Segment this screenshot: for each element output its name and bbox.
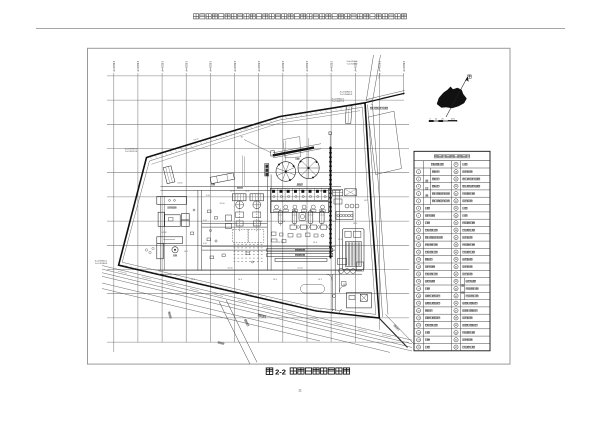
svg-text:N2: N2	[241, 137, 243, 139]
svg-text:G1.50: G1.50	[297, 268, 302, 270]
svg-text:A=4 839.5: A=4 839.5	[137, 60, 140, 71]
svg-text:A=4 839.5: A=4 839.5	[330, 60, 333, 71]
svg-text:A=4 839.5: A=4 839.5	[258, 60, 261, 71]
svg-text:2-2: 2-2	[275, 368, 286, 377]
svg-text:Y=2 05188.4: Y=2 05188.4	[95, 263, 108, 265]
svg-text:0: 0	[429, 118, 431, 120]
svg-text:G2.10: G2.10	[277, 242, 282, 244]
svg-text:G2.30: G2.30	[161, 232, 166, 234]
svg-text:G1.8: G1.8	[313, 242, 317, 244]
svg-text:4: 4	[418, 193, 420, 195]
svg-text:G2.0: G2.0	[332, 221, 336, 223]
svg-text:G2.4: G2.4	[281, 221, 285, 223]
svg-text:Y=2 05480.9: Y=2 05480.9	[340, 94, 353, 96]
svg-text:G1.6: G1.6	[338, 239, 342, 241]
svg-text:Y=2 05490.2: Y=2 05490.2	[347, 64, 358, 66]
svg-text:G1.5: G1.5	[191, 279, 195, 281]
svg-text:4.00: 4.00	[203, 243, 207, 245]
svg-text:20: 20	[441, 118, 444, 120]
svg-text:A=4 839.5: A=4 839.5	[306, 60, 309, 71]
svg-text:10: 10	[435, 118, 438, 120]
svg-text:A=4 839.5: A=4 839.5	[161, 60, 164, 71]
svg-text:G1.4: G1.4	[343, 284, 347, 286]
svg-text:G2.50: G2.50	[296, 185, 301, 187]
svg-text:G2.4: G2.4	[320, 191, 324, 193]
svg-text:G2.6: G2.6	[258, 221, 262, 223]
svg-text:G2.50: G2.50	[219, 203, 224, 205]
svg-text:G1.3: G1.3	[273, 279, 277, 281]
svg-text:50m: 50m	[451, 118, 455, 120]
svg-text:A=4 839.5: A=4 839.5	[113, 60, 116, 71]
svg-text:A=4 839.5: A=4 839.5	[185, 60, 188, 71]
svg-text:11: 11	[298, 389, 302, 393]
svg-text:G1.4: G1.4	[238, 279, 242, 281]
svg-text:X=4 84800.1: X=4 84800.1	[332, 99, 345, 101]
svg-text:G1.20: G1.20	[227, 268, 232, 270]
svg-text:A=4 839.5: A=4 839.5	[210, 60, 213, 71]
svg-text:2: 2	[418, 179, 420, 181]
svg-text:A=4 839.5: A=4 839.5	[234, 60, 237, 71]
svg-text:G3.00: G3.00	[177, 183, 182, 185]
svg-text:G2.8: G2.8	[245, 191, 249, 193]
svg-text:Y=2 05472.5: Y=2 05472.5	[332, 101, 345, 103]
svg-text:G2.8: G2.8	[230, 191, 234, 193]
svg-text:G1.2: G1.2	[318, 279, 322, 281]
svg-text:4.00: 4.00	[203, 220, 207, 222]
svg-text:A=4 839.5: A=4 839.5	[282, 60, 285, 71]
svg-text:3: 3	[418, 186, 420, 188]
svg-text:A=4 839.5: A=4 839.5	[379, 60, 382, 71]
svg-text:G2.2: G2.2	[184, 251, 188, 253]
svg-text:X=4 84735.2: X=4 84735.2	[125, 149, 138, 151]
svg-text:X=4 84630.1: X=4 84630.1	[95, 261, 108, 263]
svg-text:G2.2: G2.2	[364, 200, 368, 202]
svg-text:4.00: 4.00	[206, 195, 210, 197]
svg-text:1: 1	[418, 172, 420, 174]
svg-text:G1.9: G1.9	[353, 223, 357, 225]
svg-text:Y=2 05213.6: Y=2 05213.6	[125, 151, 138, 153]
svg-text:A=4 839.5: A=4 839.5	[403, 60, 406, 71]
svg-text:X=4 84806.3: X=4 84806.3	[340, 92, 353, 94]
